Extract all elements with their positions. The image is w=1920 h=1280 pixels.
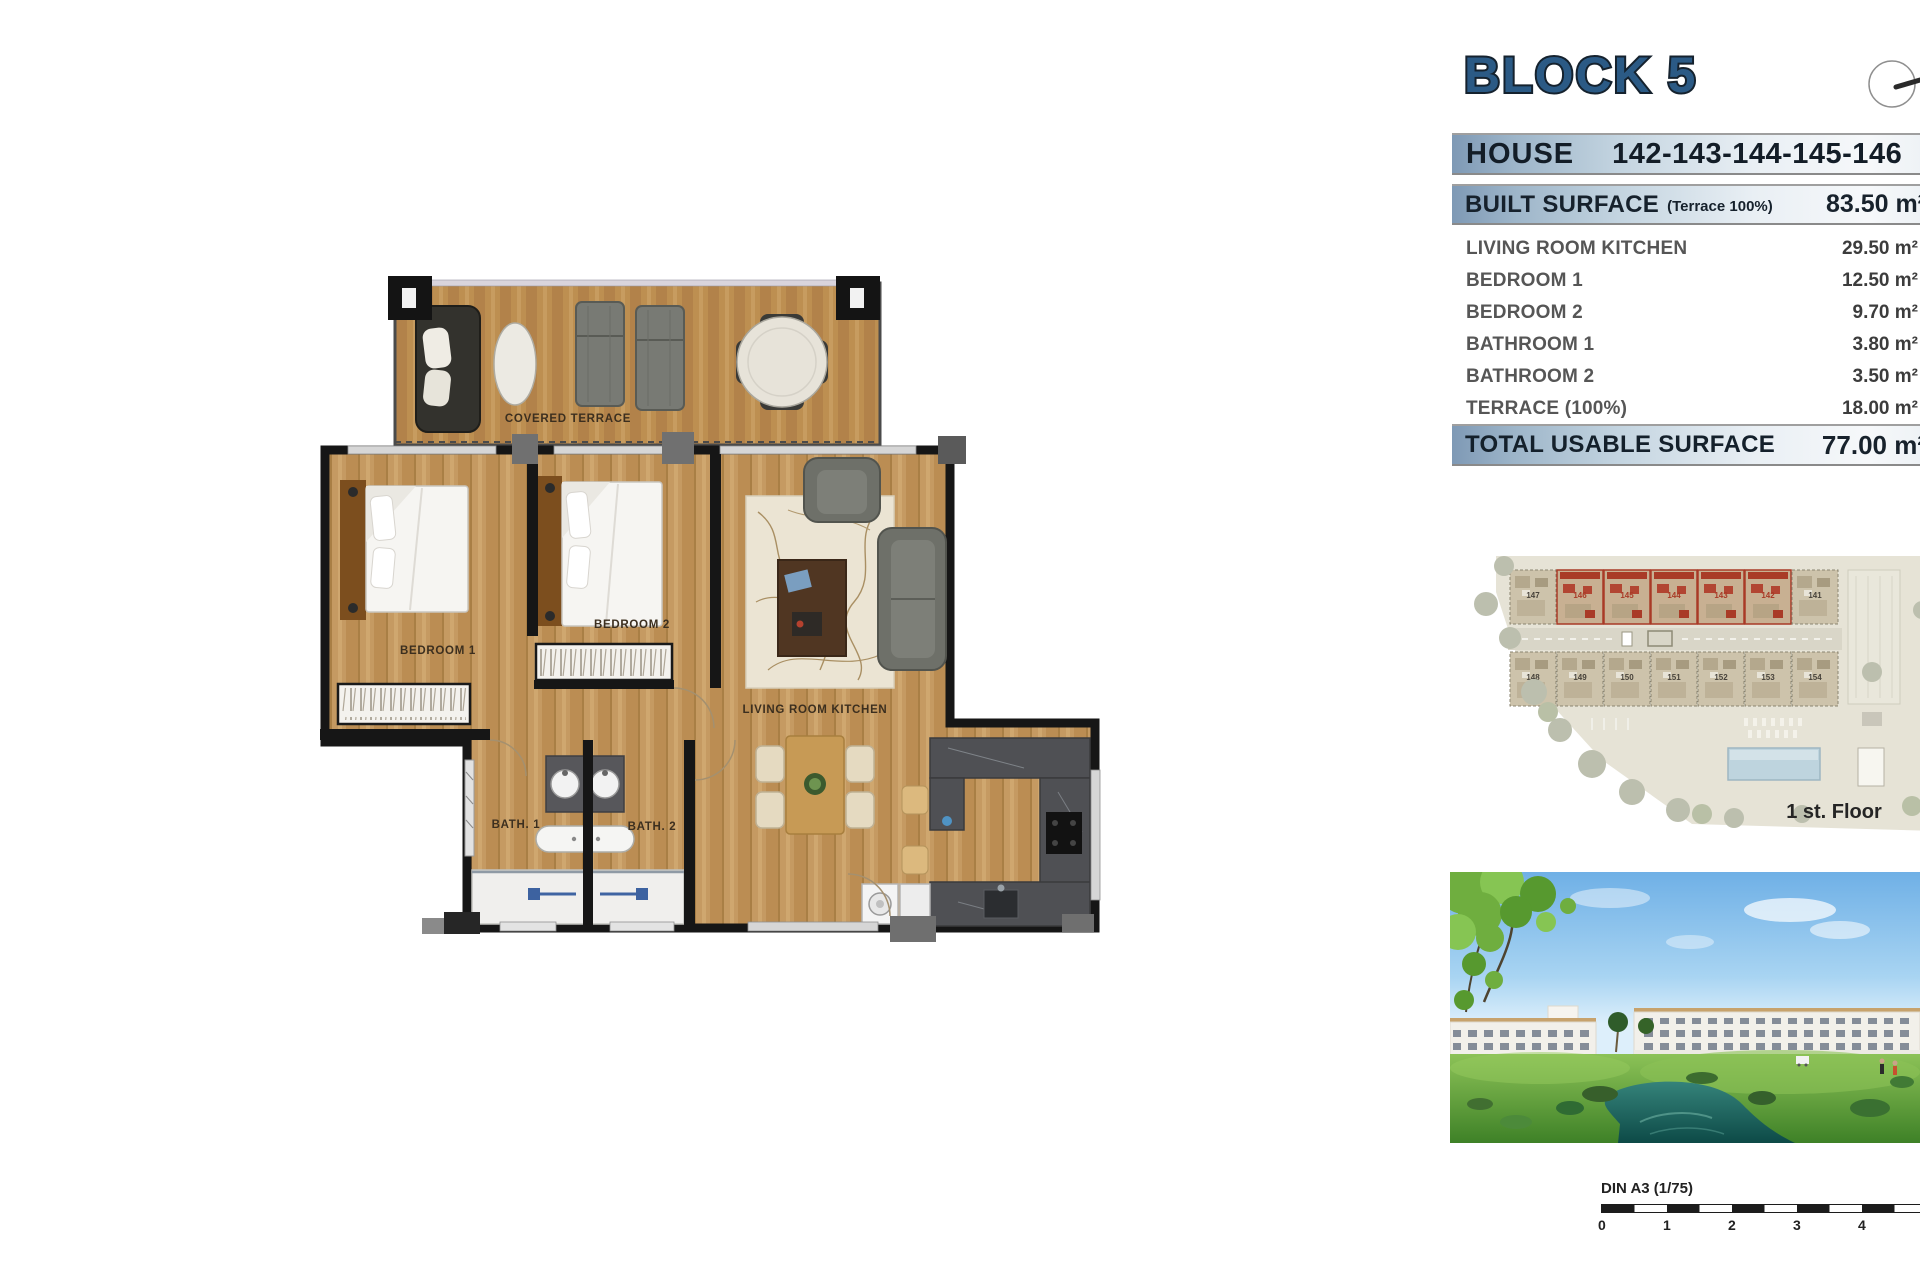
unit-number: 153	[1761, 673, 1775, 682]
surface-row: BATHROOM 2 3.50 m²	[1452, 361, 1920, 393]
surface-row-value: 12.50 m²	[1762, 270, 1918, 292]
total-surface-bar: TOTAL USABLE SURFACE 77.00 m²	[1452, 424, 1920, 466]
unit-number-highlighted: 144	[1667, 591, 1681, 600]
surface-row: BATHROOM 1 3.80 m²	[1452, 329, 1920, 361]
cooktop	[1046, 812, 1082, 854]
surface-row-label: BATHROOM 1	[1466, 334, 1594, 356]
room-label-bath1: BATH. 1	[492, 819, 541, 831]
unit-number-highlighted: 146	[1573, 591, 1587, 600]
surface-row-value: 3.50 m²	[1762, 366, 1918, 388]
scale-tick: 2	[1728, 1217, 1736, 1233]
room-label-bedroom1: BEDROOM 1	[400, 645, 476, 657]
unit-number: 149	[1573, 673, 1587, 682]
site-pool	[1728, 748, 1820, 780]
surface-row-value: 3.80 m²	[1762, 334, 1918, 356]
room-label-living: LIVING ROOM KITCHEN	[743, 704, 888, 716]
bathroom-window	[465, 760, 474, 856]
floor-plan: COVERED TERRACE	[318, 272, 1108, 952]
room-label-bedroom2: BEDROOM 2	[594, 619, 670, 631]
unit-number: 154	[1808, 673, 1822, 682]
surface-rows: LIVING ROOM KITCHEN 29.50 m² BEDROOM 1 1…	[1452, 233, 1920, 425]
unit-number-highlighted: 145	[1620, 591, 1634, 600]
house-header-bar: HOUSE 142-143-144-145-146	[1452, 133, 1920, 175]
bar-stool	[902, 846, 928, 874]
surface-row: TERRACE (100%) 18.00 m²	[1452, 393, 1920, 425]
surface-row: BEDROOM 1 12.50 m²	[1452, 265, 1920, 297]
scale-bar	[1601, 1204, 1920, 1213]
unit-number: 151	[1667, 673, 1681, 682]
scale-tick: 1	[1663, 1217, 1671, 1233]
surface-row-value: 18.00 m²	[1762, 398, 1918, 420]
room-label-bath2: BATH. 2	[628, 821, 677, 833]
house-numbers: 142-143-144-145-146	[1612, 138, 1902, 171]
surface-row-label: TERRACE (100%)	[1466, 398, 1627, 420]
golf-course-photo	[1450, 872, 1920, 1143]
plan-sheet: COVERED TERRACE	[0, 0, 1920, 1280]
unit-number: 141	[1808, 591, 1822, 600]
scale-tick: 0	[1598, 1217, 1606, 1233]
house-label: HOUSE	[1466, 138, 1574, 171]
scale-tick: 4	[1858, 1217, 1866, 1233]
north-compass-icon	[1840, 40, 1920, 140]
surface-row: BEDROOM 2 9.70 m²	[1452, 297, 1920, 329]
unit-number-highlighted: 143	[1714, 591, 1728, 600]
terrace-glass-rail	[430, 280, 838, 286]
bar-stool	[902, 786, 928, 814]
built-surface-value: 83.50 m²	[1804, 190, 1920, 219]
surface-row-label: BATHROOM 2	[1466, 366, 1594, 388]
shower-area	[472, 870, 684, 924]
living-sofa	[878, 528, 946, 670]
bedroom2-wardrobe	[536, 644, 672, 680]
surface-row: LIVING ROOM KITCHEN 29.50 m²	[1452, 233, 1920, 265]
living-coffee-table	[778, 560, 846, 656]
floor-label: 1 st. Floor	[1786, 801, 1882, 823]
bedroom2-bed	[538, 476, 662, 626]
built-surface-label: BUILT SURFACE	[1465, 191, 1659, 219]
surface-row-value: 29.50 m²	[1762, 238, 1918, 260]
built-surface-note: (Terrace 100%)	[1667, 198, 1773, 215]
total-surface-value: 77.00 m²	[1796, 430, 1920, 461]
built-surface-bar: BUILT SURFACE (Terrace 100%) 83.50 m²	[1452, 184, 1920, 225]
surface-row-label: BEDROOM 2	[1466, 302, 1583, 324]
sun-lounger	[576, 302, 624, 406]
surface-row-label: BEDROOM 1	[1466, 270, 1583, 292]
unit-number-highlighted: 142	[1761, 591, 1775, 600]
surface-row-value: 9.70 m²	[1762, 302, 1918, 324]
unit-number: 150	[1620, 673, 1634, 682]
room-label-terrace: COVERED TERRACE	[505, 413, 631, 425]
bedroom1-wardrobe	[338, 684, 470, 724]
block-title: BLOCK 5	[1464, 47, 1697, 103]
unit-number: 152	[1714, 673, 1728, 682]
living-armchair	[804, 458, 880, 522]
kitchen-sink	[984, 890, 1018, 918]
bedroom1-bed	[340, 480, 468, 620]
din-scale-label: DIN A3 (1/75)	[1601, 1180, 1693, 1197]
kitchen-bar-faucet	[942, 816, 952, 826]
site-structure	[1862, 712, 1882, 726]
site-plan: 147 146 145 144 143 142 141 148 149 150 …	[1452, 552, 1920, 836]
covered-terrace: COVERED TERRACE	[395, 280, 880, 445]
scale-tick: 3	[1793, 1217, 1801, 1233]
sun-lounger	[636, 306, 684, 410]
unit-number: 147	[1526, 591, 1540, 600]
total-surface-label: TOTAL USABLE SURFACE	[1465, 431, 1775, 459]
block-title-svg: BLOCK 5	[1458, 38, 1798, 110]
surface-row-label: LIVING ROOM KITCHEN	[1466, 238, 1687, 260]
terrace-sofa	[416, 306, 480, 432]
terrace-coffee-table	[494, 323, 536, 405]
site-pavilion	[1858, 748, 1884, 786]
